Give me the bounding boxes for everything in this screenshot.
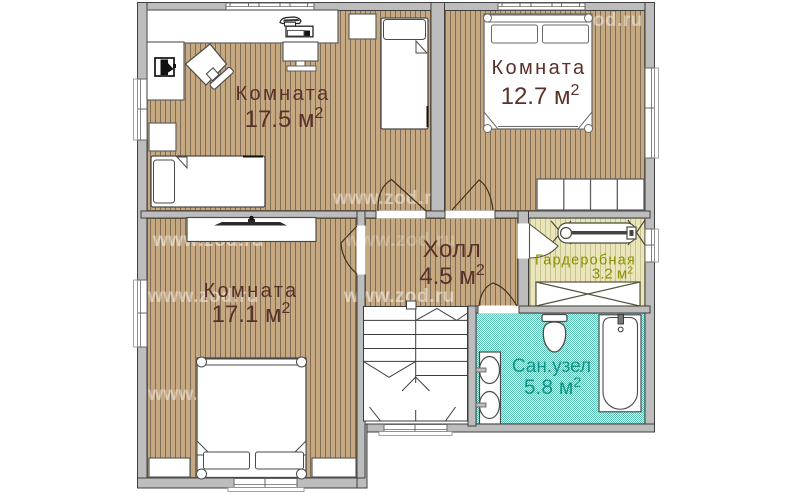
svg-text:Комната: Комната [491,57,586,79]
svg-text:4.5 м2: 4.5 м2 [419,262,485,290]
svg-text:Холл: Холл [423,236,482,263]
svg-text:3.2 м2: 3.2 м2 [592,265,633,283]
svg-text:www.zod.ru: www.zod.ru [332,188,444,209]
svg-text:17.1 м2: 17.1 м2 [212,300,291,328]
svg-text:12.7 м2: 12.7 м2 [501,82,580,110]
svg-text:Комната: Комната [203,280,298,302]
svg-text:Комната: Комната [235,83,330,105]
svg-text:17.5 м2: 17.5 м2 [245,105,324,133]
svg-text:5.8 м2: 5.8 м2 [524,374,581,399]
